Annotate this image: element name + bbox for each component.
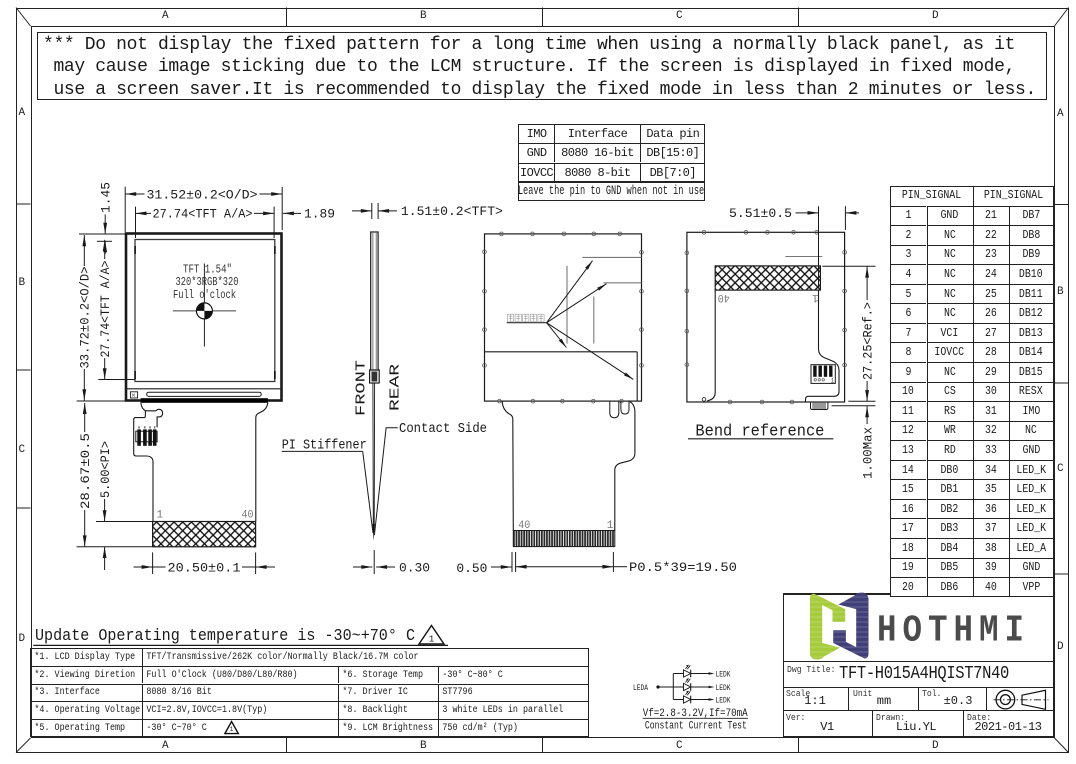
svg-text:33.72±0.2<O/D>: 33.72±0.2<O/D> bbox=[78, 266, 93, 368]
svg-text:P0.5*39=19.50: P0.5*39=19.50 bbox=[629, 560, 737, 575]
svg-text:1.89: 1.89 bbox=[304, 207, 335, 222]
svg-text:HOTHMI: HOTHMI bbox=[877, 610, 1030, 653]
svg-text:Constant Current Test: Constant Current Test bbox=[645, 720, 747, 732]
svg-text:LEDK: LEDK bbox=[716, 696, 732, 706]
svg-text:20.50±0.1: 20.50±0.1 bbox=[168, 560, 241, 575]
svg-text:27.25<Ref.>: 27.25<Ref.> bbox=[860, 302, 875, 380]
svg-text:320*3RGB*320: 320*3RGB*320 bbox=[176, 276, 239, 289]
svg-text:LEDK: LEDK bbox=[716, 683, 732, 693]
svg-text:31.52±0.2<O/D>: 31.52±0.2<O/D> bbox=[147, 187, 258, 202]
svg-text:LEDA: LEDA bbox=[633, 683, 649, 693]
svg-text:1: 1 bbox=[429, 634, 435, 645]
svg-text:1: 1 bbox=[812, 291, 819, 303]
svg-text:0.50: 0.50 bbox=[456, 561, 487, 576]
svg-text:M: M bbox=[132, 393, 135, 399]
svg-text:40: 40 bbox=[718, 291, 730, 303]
svg-text:27.74<TFT A/A>: 27.74<TFT A/A> bbox=[153, 207, 253, 222]
svg-text:TFT 1.54″: TFT 1.54″ bbox=[183, 264, 232, 277]
svg-text:40: 40 bbox=[242, 510, 254, 522]
svg-text:Contact Side: Contact Side bbox=[399, 422, 487, 437]
svg-text:LEDK: LEDK bbox=[716, 670, 732, 680]
svg-text:REAR: REAR bbox=[389, 364, 404, 411]
svg-text:1.45: 1.45 bbox=[99, 182, 114, 213]
svg-text:1: 1 bbox=[831, 377, 835, 384]
svg-text:FRONT: FRONT bbox=[355, 360, 370, 416]
svg-text:0.30: 0.30 bbox=[399, 560, 430, 575]
svg-text:28.67±0.5: 28.67±0.5 bbox=[78, 433, 93, 509]
svg-text:1.00Max: 1.00Max bbox=[860, 427, 875, 479]
svg-text:1: 1 bbox=[607, 520, 614, 532]
svg-text:Update Operating temperature i: Update Operating temperature is -30~+70°… bbox=[35, 627, 415, 646]
svg-text:1: 1 bbox=[230, 726, 234, 733]
svg-text:1.51±0.2<TFT>: 1.51±0.2<TFT> bbox=[401, 204, 503, 219]
svg-text:40: 40 bbox=[518, 520, 530, 532]
svg-text:5.51±0.5: 5.51±0.5 bbox=[729, 206, 792, 221]
svg-text:27.74<TFT A/A>: 27.74<TFT A/A> bbox=[98, 260, 113, 357]
svg-text:1: 1 bbox=[157, 510, 164, 522]
svg-text:5.00<PI>: 5.00<PI> bbox=[98, 441, 113, 498]
